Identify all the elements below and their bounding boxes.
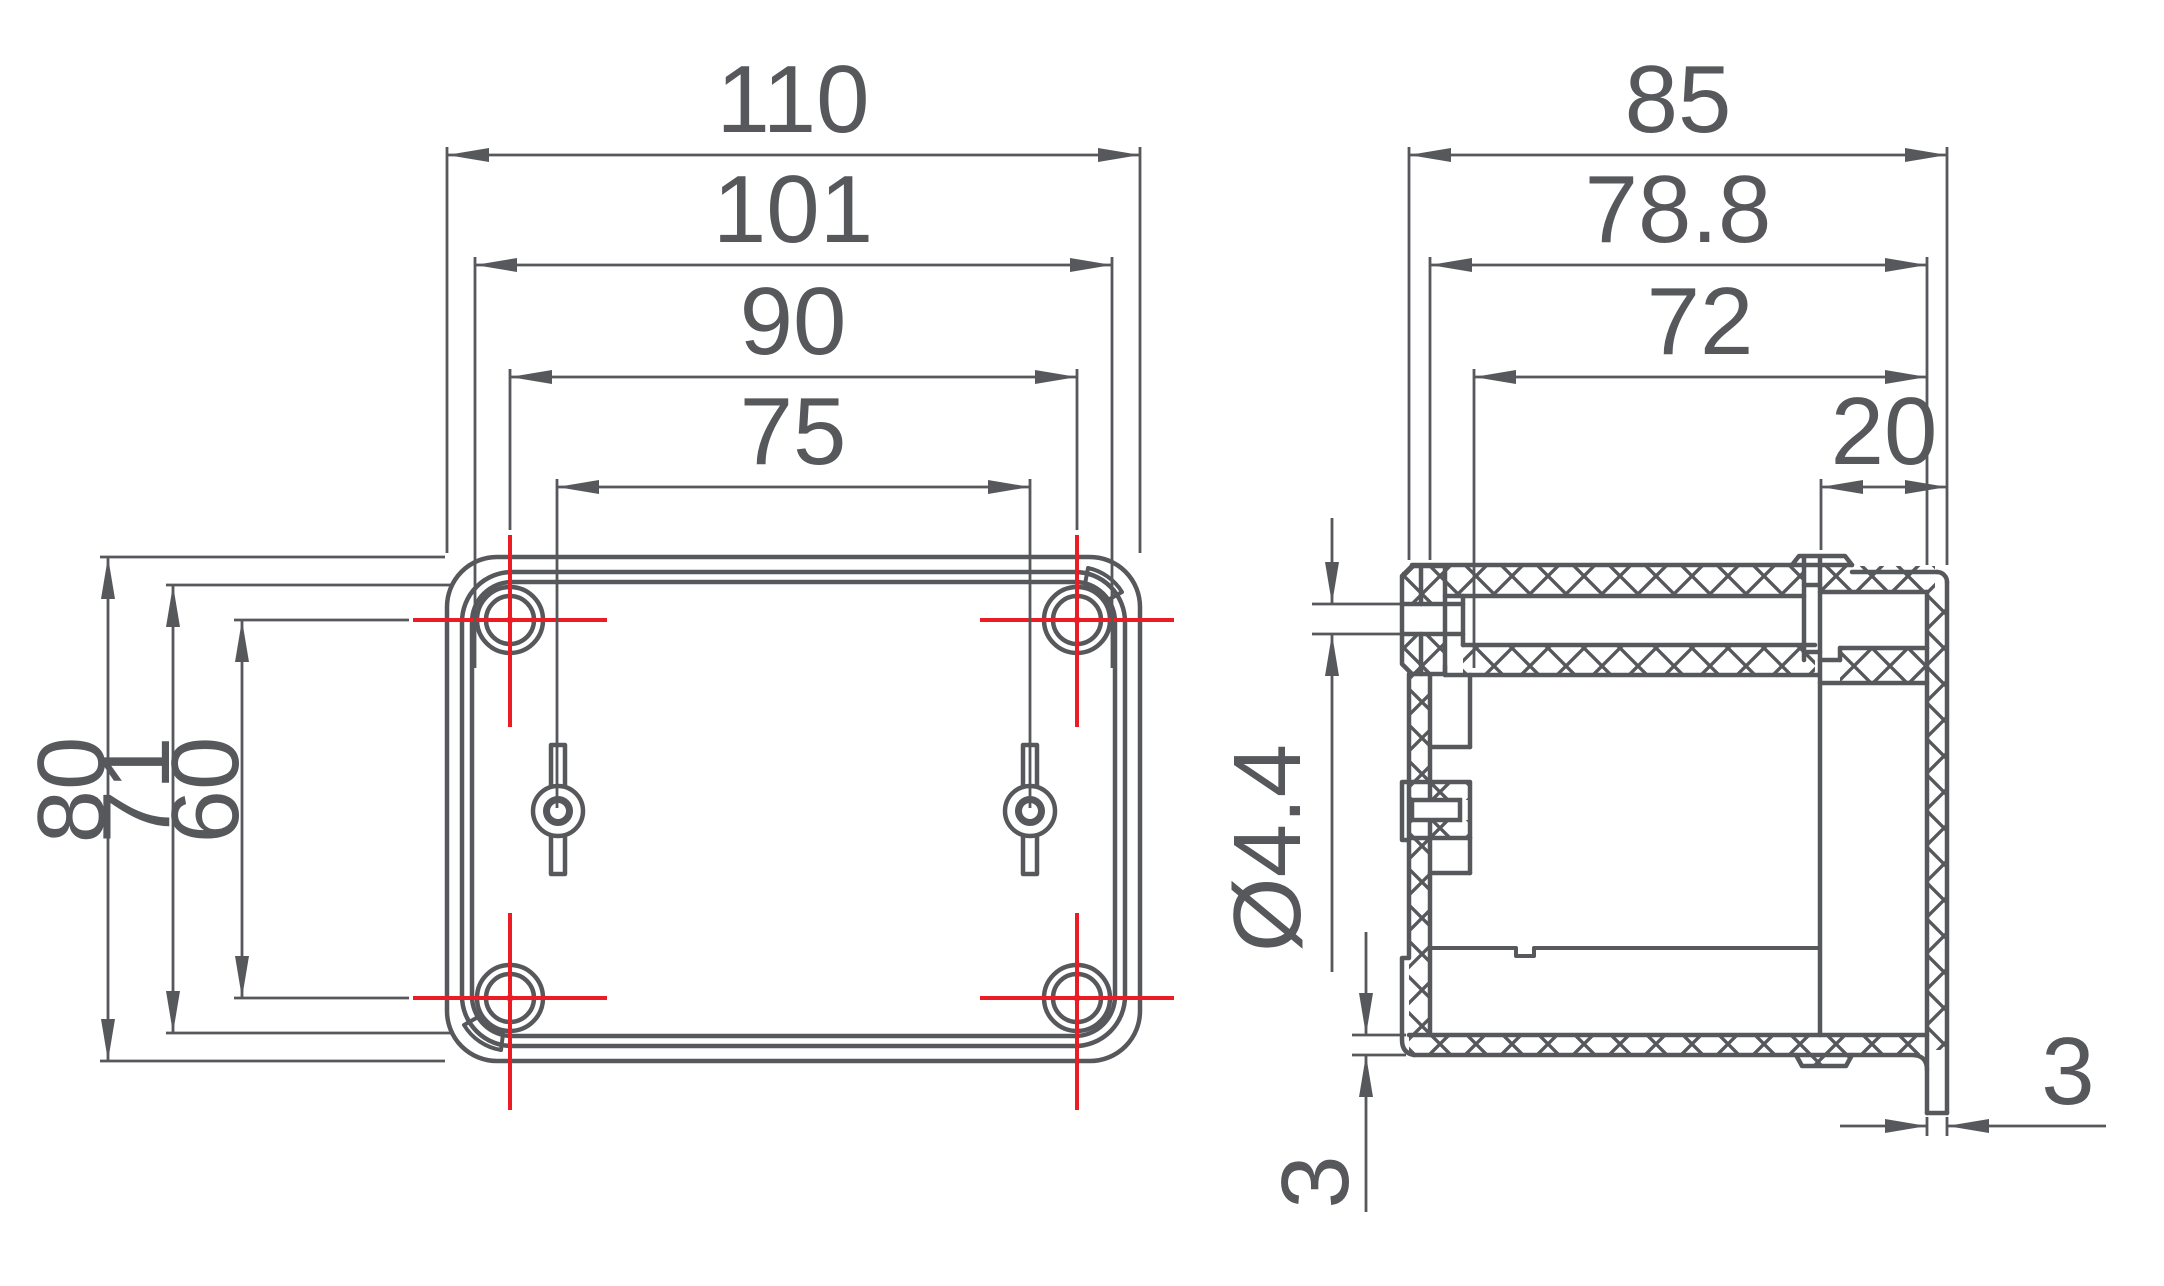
lid-depth-dim-label: 20 — [1831, 378, 1938, 485]
hole-spacing-height-dim-label: 60 — [152, 737, 259, 844]
drawing-page: 110 101 90 75 80 71 60 — [0, 0, 2164, 1286]
rim-thickness-dim-label: 3 — [2041, 1018, 2094, 1125]
inner-depth-dim-label: 72 — [1647, 268, 1754, 375]
overall-width-dim-label: 110 — [716, 46, 869, 153]
enclosure-technical-drawing: 110 101 90 75 80 71 60 — [0, 0, 2164, 1286]
body-section-outline — [1402, 556, 1927, 1070]
screw-spacing-width-dim-label: 101 — [713, 156, 873, 263]
tab-spacing-dim-label: 75 — [740, 378, 847, 485]
overall-depth-dim-label: 85 — [1625, 46, 1732, 153]
body-depth-dim-label: 78.8 — [1585, 156, 1772, 263]
side-view: 85 78.8 72 20 Ø4.4 3 3 — [1214, 46, 2106, 1212]
section-hatching — [1402, 565, 1947, 1066]
hole-spacing-width-dim-label: 90 — [740, 268, 847, 375]
front-dimensions: 110 101 90 75 80 71 60 — [18, 46, 1140, 1061]
screw-hole-diameter-dim-label: Ø4.4 — [1214, 744, 1321, 952]
wall-thickness-dim-label: 3 — [1262, 1155, 1369, 1208]
front-view: 110 101 90 75 80 71 60 — [18, 46, 1174, 1110]
